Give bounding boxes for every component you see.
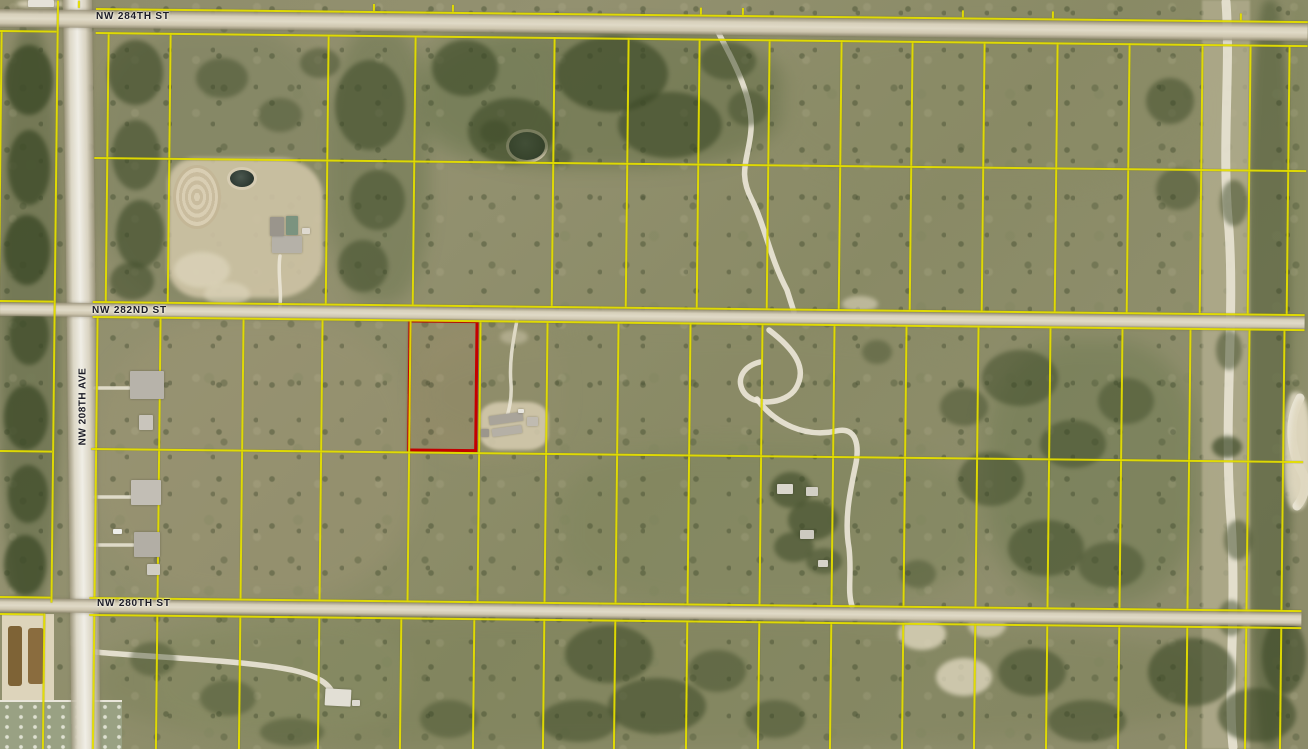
aerial-parcel-map[interactable]: NW 284TH ST NW 282ND ST NW 280TH ST NW 2… [0, 0, 1308, 749]
building [489, 412, 524, 426]
building [518, 409, 524, 413]
building [325, 688, 352, 706]
street-label-nw-280th-st: NW 280TH ST [97, 598, 171, 609]
building [492, 425, 523, 437]
building [527, 417, 538, 426]
street-label-nw-284th-st: NW 284TH ST [96, 11, 170, 22]
building-layer [0, 0, 1308, 749]
building [28, 0, 54, 7]
building [113, 529, 122, 534]
building [302, 228, 310, 234]
building [130, 371, 164, 399]
building [272, 236, 302, 253]
building [134, 532, 160, 557]
street-label-nw-208th-ave: NW 208TH AVE [78, 357, 89, 457]
building [352, 700, 360, 706]
building [800, 530, 814, 539]
building [131, 480, 161, 505]
building [818, 560, 828, 567]
building [777, 484, 793, 494]
street-label-nw-282nd-st: NW 282ND ST [92, 305, 167, 316]
building [139, 415, 153, 430]
building [270, 217, 284, 236]
building [286, 216, 298, 235]
building [147, 564, 160, 575]
building [481, 429, 489, 437]
building [806, 487, 818, 496]
